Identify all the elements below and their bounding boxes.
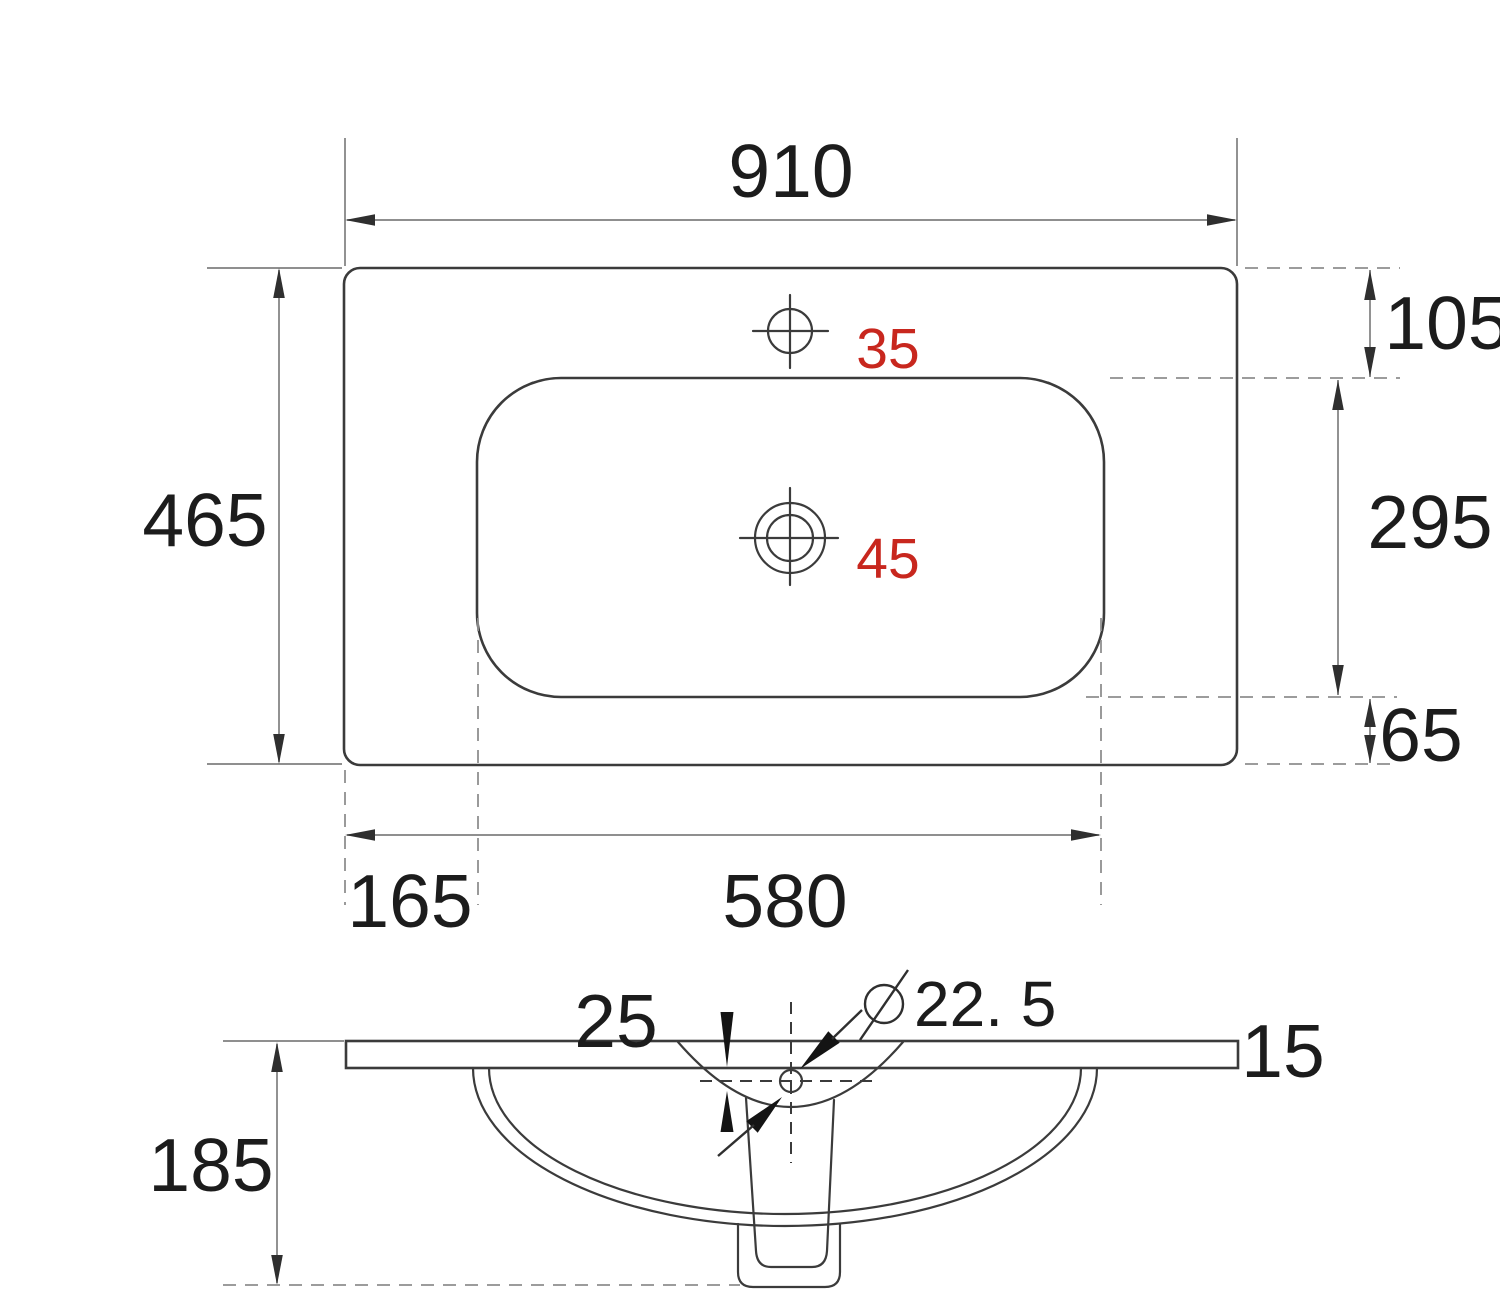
dim-basin-top-offset-label: 105: [1384, 281, 1500, 365]
dim-overall-width-label: 910: [728, 129, 853, 213]
arrowhead-icon: [271, 1042, 283, 1072]
dim-basin-left-offset-label: 165: [347, 859, 472, 943]
arrowhead-icon: [271, 1255, 283, 1285]
spike-arrow-icon: [721, 1091, 734, 1132]
dim-basin-width-label: 580: [722, 859, 847, 943]
drain-box-outline: [738, 1224, 840, 1287]
sink-dimension-drawing: 910 465 105 295 65 165 580 35 45: [0, 0, 1500, 1309]
arrowhead-icon: [1364, 735, 1376, 763]
arrowhead-icon: [273, 734, 285, 764]
dim-overall-height-label: 185: [148, 1123, 273, 1207]
leader-line: [832, 1010, 862, 1039]
technical-drawing-page: 910 465 105 295 65 165 580 35 45: [0, 0, 1500, 1309]
diameter-symbol-icon: [860, 970, 908, 1040]
arrowhead-icon: [1207, 214, 1237, 226]
dim-overall-depth-label: 465: [142, 478, 267, 562]
dim-slab-thickness-label: 15: [1241, 1009, 1324, 1093]
faucet-hole-diameter-label: 35: [856, 317, 919, 381]
arrowhead-icon: [1364, 699, 1376, 727]
arrowhead-icon: [1364, 270, 1376, 300]
dim-basin-bottom-offset-label: 65: [1379, 693, 1462, 777]
drain-hole-diameter-label: 45: [856, 527, 919, 591]
arrowhead-icon: [1071, 829, 1101, 841]
dim-hole-depth-label: 25: [574, 979, 657, 1063]
dim-hole-diameter-label: 22. 5: [914, 968, 1056, 1040]
arrowhead-icon: [273, 268, 285, 298]
arrowhead-icon: [1332, 380, 1344, 410]
section-view: 25 22. 5 15 185: [148, 968, 1324, 1287]
top-view: 910 465 105 295 65 165 580 35 45: [142, 129, 1500, 943]
dim-basin-depth-label: 295: [1367, 480, 1492, 564]
arrowhead-icon: [1332, 665, 1344, 695]
arrowhead-icon: [345, 214, 375, 226]
bowl-outer-outline: [473, 1068, 1097, 1226]
arrowhead-icon: [1364, 347, 1376, 377]
arrowhead-icon: [345, 829, 375, 841]
